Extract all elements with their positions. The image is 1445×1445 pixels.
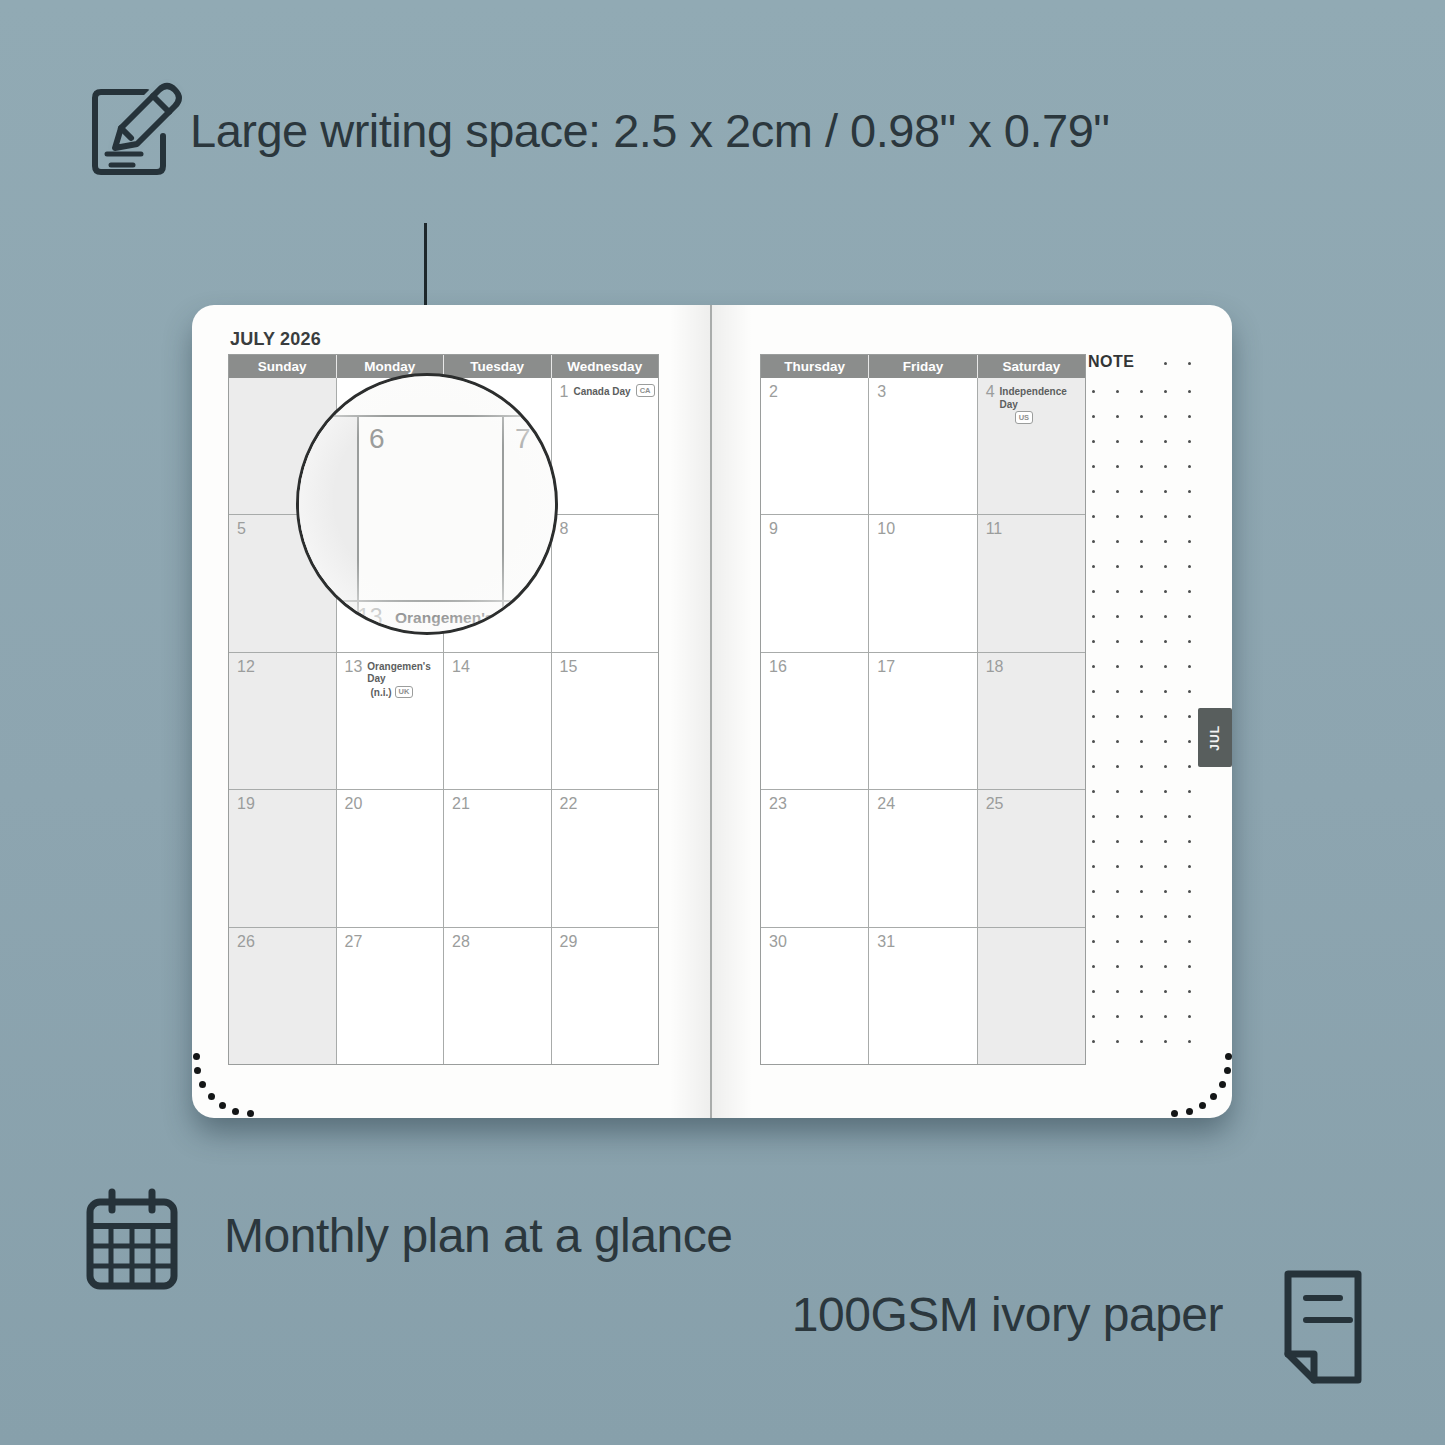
date-number: 21 [452,796,470,812]
note-dot [1188,790,1191,793]
note-dot [1116,815,1119,818]
calendar-cell: 1Canada DayCA [551,378,659,514]
note-dot [1164,690,1167,693]
note-dot [1092,540,1095,543]
note-dot [1116,740,1119,743]
note-dot [1164,965,1167,968]
note-dot [1092,840,1095,843]
calendar-cell: 3 [868,378,976,514]
note-dot [1116,540,1119,543]
calendar-week-row: 91011 [761,514,1085,651]
note-dot [1188,690,1191,693]
note-dot [1140,465,1143,468]
note-dot [1164,665,1167,668]
calendar-cell: 27 [336,928,444,1064]
note-dot [1092,440,1095,443]
calendar-cell: 26 [229,928,336,1064]
month-title: JULY 2026 [230,329,321,350]
note-dot [1116,490,1119,493]
spine-shadow-right [712,305,752,1118]
decoration-dot [208,1093,215,1100]
holiday-label-line2: US [978,411,1085,424]
calendar-cell: 13Orangemen's Day(n.i.)UK [336,653,444,789]
note-dot [1092,615,1095,618]
decoration-dot [193,1053,200,1060]
calendar-cell: 11 [977,515,1085,651]
weekday-header-sunday: Sunday [229,355,336,378]
note-dot [1140,990,1143,993]
note-dot [1164,490,1167,493]
calendar-cell: 10 [868,515,976,651]
note-dot [1140,940,1143,943]
note-dot [1188,415,1191,418]
holiday-label: Canada Day [573,384,630,399]
note-dot [1140,415,1143,418]
note-dot [1140,840,1143,843]
note-dot [1140,490,1143,493]
note-dot [1188,540,1191,543]
country-badge: UK [395,686,414,699]
calendar-week-row: 26272829 [229,927,658,1064]
note-dot [1092,815,1095,818]
note-dot [1140,615,1143,618]
weekday-header-thursday: Thursday [761,355,868,378]
note-dot [1140,515,1143,518]
note-dot [1188,765,1191,768]
note-dot [1164,940,1167,943]
month-tab-label: JUL [1208,725,1222,751]
calendar-cell: 24 [868,790,976,926]
note-dot [1092,465,1095,468]
note-dot [1140,640,1143,643]
holiday-label-line2: (n.i.)UK [337,686,444,699]
date-number: 12 [237,659,255,675]
note-dot [1164,1015,1167,1018]
date-number: 10 [877,521,895,537]
calendar-right-page: ThursdayFridaySaturday 234Independence D… [760,354,1086,1065]
date-number: 27 [345,934,363,950]
note-dot [1188,865,1191,868]
note-dot [1140,1015,1143,1018]
note-dot [1164,890,1167,893]
note-dot [1092,790,1095,793]
calendar-cell: 22 [551,790,659,926]
date-number: 22 [560,796,578,812]
calendar-grid: 234Independence DayUS9101116171823242530… [761,378,1085,1064]
note-dot [1140,665,1143,668]
note-dot [1092,565,1095,568]
note-dot [1116,390,1119,393]
note-dot [1116,465,1119,468]
note-dot [1092,690,1095,693]
note-dot [1140,890,1143,893]
monthly-plan-caption: Monthly plan at a glance [224,1208,732,1263]
note-dot [1140,715,1143,718]
note-dot [1164,515,1167,518]
note-dot [1116,415,1119,418]
note-dot [1188,715,1191,718]
decoration-dot [219,1102,226,1109]
date-number: 2 [769,384,778,400]
note-dot [1116,590,1119,593]
calendar-cell: 30 [761,928,868,1064]
note-dot [1116,915,1119,918]
note-dot [1140,815,1143,818]
note-dot [1116,765,1119,768]
date-number: 19 [237,796,255,812]
note-dot [1140,790,1143,793]
note-dot [1116,865,1119,868]
calendar-week-row: 234Independence DayUS [761,378,1085,514]
note-dot [1164,540,1167,543]
lens-glass-fog [299,376,555,632]
decoration-dot [1219,1081,1226,1088]
note-dot [1188,1015,1191,1018]
calendar-cell: 18 [977,653,1085,789]
note-dot [1140,390,1143,393]
note-dot [1164,815,1167,818]
note-dot [1188,465,1191,468]
note-dot [1164,390,1167,393]
note-dot [1164,362,1167,365]
note-dot [1164,790,1167,793]
decoration-dot [199,1081,206,1088]
note-dot [1188,840,1191,843]
calendar-week-row: 1213Orangemen's Day(n.i.)UK1415 [229,652,658,789]
note-dot [1116,615,1119,618]
calendar-cell: 4Independence DayUS [977,378,1085,514]
note-dot [1116,665,1119,668]
date-number: 8 [560,521,569,537]
note-dot [1140,915,1143,918]
weekday-header-tuesday: Tuesday [443,355,551,378]
note-dot [1140,1040,1143,1043]
note-dot [1140,590,1143,593]
note-dot [1092,390,1095,393]
writing-space-caption: Large writing space: 2.5 x 2cm / 0.98" x… [190,103,1110,158]
date-number: 29 [560,934,578,950]
note-dot [1116,840,1119,843]
weekday-header-friday: Friday [868,355,976,378]
calendar-cell: 29 [551,928,659,1064]
note-dot [1188,740,1191,743]
note-dot [1188,915,1191,918]
notebook-spine [710,305,712,1118]
note-dot [1092,490,1095,493]
note-dot [1116,890,1119,893]
note-dot [1188,615,1191,618]
decoration-dot [194,1067,201,1074]
note-dot [1116,640,1119,643]
date-number: 18 [986,659,1004,675]
note-dot [1188,362,1191,365]
calendar-cell: 25 [977,790,1085,926]
calendar-cell: 8 [551,515,659,651]
note-dot [1140,440,1143,443]
note-dot [1092,640,1095,643]
country-badge: CA [636,384,655,397]
date-number: 24 [877,796,895,812]
note-dot [1092,890,1095,893]
note-dot [1116,715,1119,718]
country-badge: US [1015,411,1033,424]
note-column-label: NOTE [1088,353,1134,371]
calendar-cell: 28 [443,928,551,1064]
calendar-week-row: 161718 [761,652,1085,789]
note-dot [1188,590,1191,593]
date-number: 25 [986,796,1004,812]
note-dot [1092,515,1095,518]
note-dot [1092,1040,1095,1043]
note-dot [1092,715,1095,718]
note-dot [1164,865,1167,868]
date-number: 11 [986,521,1003,537]
date-number: 5 [237,521,246,537]
calendar-week-row: 19202122 [229,789,658,926]
note-dot [1164,440,1167,443]
calendar-icon [84,1188,180,1292]
calendar-week-row: 232425 [761,789,1085,926]
note-dot [1092,415,1095,418]
date-number: 15 [560,659,578,675]
paper-caption: 100GSM ivory paper [792,1287,1223,1342]
note-dot [1140,740,1143,743]
calendar-cell: 14 [443,653,551,789]
date-number: 3 [877,384,886,400]
note-dot [1188,815,1191,818]
date-number: 16 [769,659,787,675]
date-number: 4 [986,384,995,400]
note-dot [1188,890,1191,893]
note-dot [1092,765,1095,768]
magnifier-lens: 6 7 13 Orangemen's Day (n.i.) UK [296,373,558,635]
calendar-cell: 23 [761,790,868,926]
note-dot [1116,990,1119,993]
date-number: 14 [452,659,470,675]
note-dot [1092,740,1095,743]
product-feature-image: Large writing space: 2.5 x 2cm / 0.98" x… [0,0,1445,1445]
note-dot [1164,415,1167,418]
date-number: 30 [769,934,787,950]
date-number: 20 [345,796,363,812]
note-dot [1164,840,1167,843]
calendar-cell: 21 [443,790,551,926]
note-dot [1164,590,1167,593]
note-dot [1164,465,1167,468]
note-dot [1188,515,1191,518]
month-tab: JUL [1198,708,1232,767]
note-dot [1092,990,1095,993]
spine-shadow-left [670,305,710,1118]
note-dot [1164,990,1167,993]
note-dot [1188,640,1191,643]
note-dot [1092,940,1095,943]
note-dot [1188,390,1191,393]
calendar-cell: 20 [336,790,444,926]
date-number: 1 [560,384,569,400]
note-dot [1092,665,1095,668]
weekday-header-row: ThursdayFridaySaturday [761,355,1085,378]
note-dot [1140,765,1143,768]
calendar-cell: 31 [868,928,976,1064]
note-dot [1092,915,1095,918]
weekday-header-wednesday: Wednesday [551,355,659,378]
note-dot [1188,665,1191,668]
calendar-cell: 12 [229,653,336,789]
note-dot [1188,965,1191,968]
note-dot [1164,765,1167,768]
note-dot [1164,740,1167,743]
decoration-dot [247,1110,254,1117]
note-dot [1188,565,1191,568]
note-dot [1188,990,1191,993]
note-dot [1116,1015,1119,1018]
note-dot [1188,490,1191,493]
decoration-dot [1225,1053,1232,1060]
note-dot [1116,440,1119,443]
note-dot [1140,540,1143,543]
note-dot [1140,965,1143,968]
note-dot [1164,565,1167,568]
date-number: 31 [877,934,895,950]
note-dot [1116,1040,1119,1043]
calendar-cell: 19 [229,790,336,926]
calendar-cell: 2 [761,378,868,514]
note-dot [1164,715,1167,718]
calendar-cell: 17 [868,653,976,789]
note-dot [1092,865,1095,868]
calendar-week-row: 3031 [761,927,1085,1064]
note-dot [1116,790,1119,793]
calendar-cell [977,928,1085,1064]
note-dot [1092,965,1095,968]
weekday-header-saturday: Saturday [977,355,1085,378]
note-dot [1140,865,1143,868]
calendar-cell: 15 [551,653,659,789]
date-number: 28 [452,934,470,950]
paper-sheet-icon [1278,1266,1368,1388]
calendar-cell: 16 [761,653,868,789]
note-dot [1092,590,1095,593]
date-number: 13 [345,659,363,675]
note-dot [1164,615,1167,618]
note-dot [1116,940,1119,943]
calendar-cell: 9 [761,515,868,651]
note-dot [1188,1040,1191,1043]
pencil-note-icon [85,70,185,178]
date-number: 23 [769,796,787,812]
note-dot [1092,1015,1095,1018]
note-dot [1116,515,1119,518]
note-dot [1188,440,1191,443]
decoration-dot [1186,1108,1193,1115]
holiday-label: Orangemen's Day [367,659,440,686]
date-number: 9 [769,521,778,537]
note-dot [1116,565,1119,568]
date-number: 26 [237,934,255,950]
note-dot [1164,915,1167,918]
note-dot [1116,965,1119,968]
note-dot [1188,940,1191,943]
holiday-label: Independence Day [1000,384,1082,411]
date-number: 17 [877,659,895,675]
note-dot [1140,565,1143,568]
note-dot [1116,690,1119,693]
note-dot [1140,690,1143,693]
note-dot [1164,1040,1167,1043]
note-dot [1164,640,1167,643]
